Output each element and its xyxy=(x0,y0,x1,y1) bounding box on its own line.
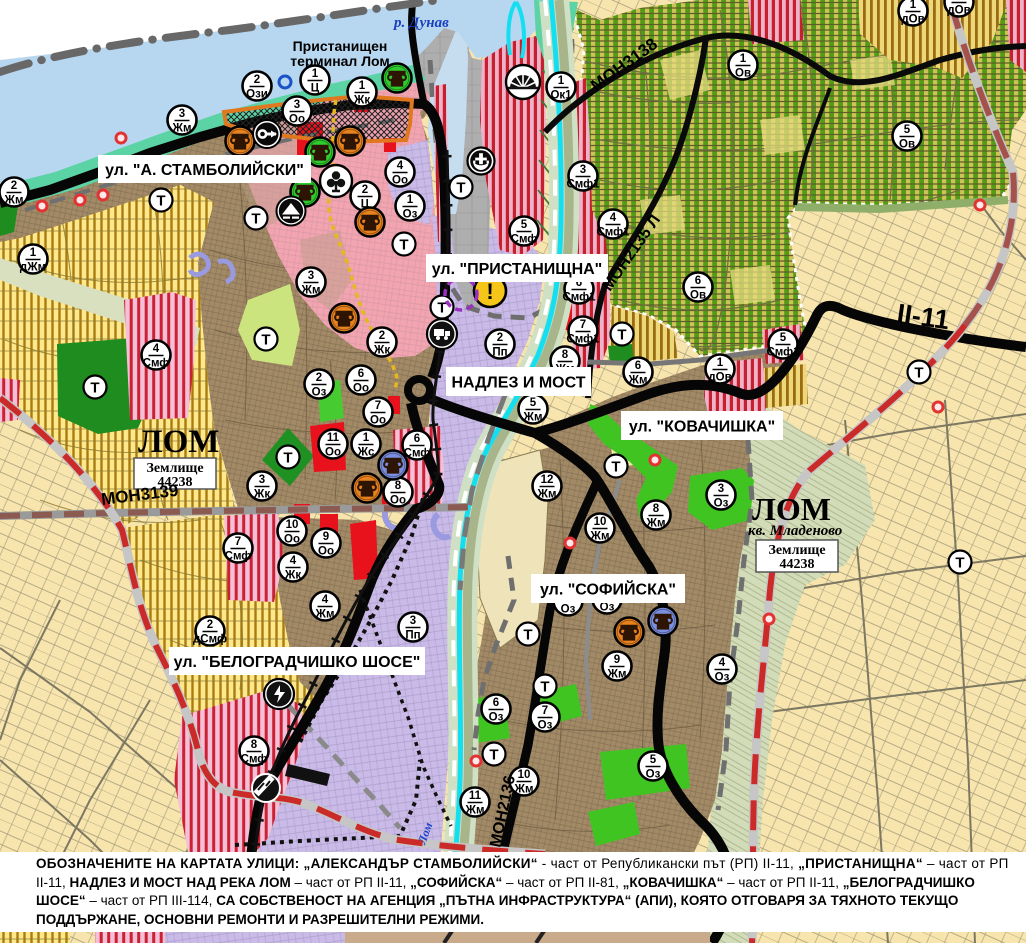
svg-text:10: 10 xyxy=(518,769,531,781)
svg-text:4: 4 xyxy=(322,594,329,606)
svg-text:Смф1: Смф1 xyxy=(566,334,600,346)
svg-text:10: 10 xyxy=(286,519,299,531)
svg-text:2: 2 xyxy=(207,619,213,631)
svg-text:7: 7 xyxy=(580,319,586,331)
svg-text:Смф1: Смф1 xyxy=(562,292,596,304)
svg-text:Землище: Землище xyxy=(768,543,825,558)
svg-text:ул. "СОФИЙСКА": ул. "СОФИЙСКА" xyxy=(540,579,676,598)
svg-text:Оо: Оо xyxy=(370,415,386,427)
svg-text:Ов: Ов xyxy=(899,139,915,151)
svg-text:3: 3 xyxy=(179,108,185,120)
svg-text:ул. "КОВАЧИШКА": ул. "КОВАЧИШКА" xyxy=(629,418,775,435)
svg-text:4: 4 xyxy=(153,343,160,355)
svg-text:Жм: Жм xyxy=(301,285,321,297)
svg-text:Т: Т xyxy=(540,679,549,696)
svg-text:Оо: Оо xyxy=(325,447,341,459)
svg-text:Оо: Оо xyxy=(318,546,334,558)
svg-text:Жм: Жм xyxy=(590,531,610,543)
svg-text:ул. "А. СТАМБОЛИЙСКИ": ул. "А. СТАМБОЛИЙСКИ" xyxy=(105,160,304,179)
svg-text:9: 9 xyxy=(614,654,620,666)
svg-text:12: 12 xyxy=(541,474,554,486)
svg-text:Жм: Жм xyxy=(172,123,192,135)
svg-text:2: 2 xyxy=(316,372,322,384)
svg-text:Жм: Жм xyxy=(607,669,627,681)
svg-text:дСмф: дСмф xyxy=(193,634,227,646)
svg-text:Пп: Пп xyxy=(405,630,420,642)
svg-text:Смф: Смф xyxy=(225,551,252,563)
svg-text:6: 6 xyxy=(358,368,364,380)
svg-text:Жс: Жс xyxy=(357,447,375,459)
svg-text:Пп: Пп xyxy=(492,347,507,359)
svg-text:дОв: дОв xyxy=(947,5,970,17)
svg-text:8: 8 xyxy=(395,480,402,492)
svg-text:Жм: Жм xyxy=(628,375,648,387)
svg-text:1: 1 xyxy=(30,247,37,259)
svg-text:Ов: Ов xyxy=(735,68,751,80)
svg-text:1: 1 xyxy=(910,0,917,11)
svg-text:4: 4 xyxy=(397,160,404,172)
svg-text:Оо: Оо xyxy=(390,495,406,507)
svg-text:3: 3 xyxy=(410,615,416,627)
svg-text:Смф: Смф xyxy=(404,448,431,460)
svg-text:5: 5 xyxy=(780,332,787,344)
svg-text:Жм: Жм xyxy=(4,195,24,207)
svg-text:ЛОМ: ЛОМ xyxy=(752,491,831,527)
svg-text:Оз: Оз xyxy=(403,209,418,221)
svg-text:НАДЛЕЗ И МОСТ: НАДЛЕЗ И МОСТ xyxy=(451,374,585,391)
svg-text:ул. "ПРИСТАНИЩНА": ул. "ПРИСТАНИЩНА" xyxy=(432,261,603,278)
svg-text:Т: Т xyxy=(251,211,260,228)
svg-text:Т: Т xyxy=(523,627,532,644)
svg-text:6: 6 xyxy=(695,275,701,287)
svg-text:3: 3 xyxy=(294,99,300,111)
svg-text:Т: Т xyxy=(955,555,964,572)
svg-text:Пристанищен: Пристанищен xyxy=(293,38,388,54)
svg-text:Т: Т xyxy=(156,193,165,210)
svg-text:Оз: Оз xyxy=(489,712,504,724)
svg-text:Оз: Оз xyxy=(646,769,661,781)
svg-text:2: 2 xyxy=(362,184,368,196)
svg-text:р. Дунав: р. Дунав xyxy=(392,15,449,31)
svg-text:6: 6 xyxy=(635,360,641,372)
svg-text:5: 5 xyxy=(521,219,528,231)
svg-text:!: ! xyxy=(486,279,493,304)
svg-text:Жм: Жм xyxy=(646,518,666,530)
svg-text:1: 1 xyxy=(363,432,370,444)
svg-text:кв. Младеново: кв. Младеново xyxy=(748,523,842,539)
svg-text:Оо: Оо xyxy=(289,114,305,126)
svg-text:Т: Т xyxy=(617,327,626,344)
svg-text:6: 6 xyxy=(414,433,420,445)
svg-text:7: 7 xyxy=(375,400,381,412)
svg-text:1: 1 xyxy=(359,80,366,92)
svg-text:Т: Т xyxy=(914,365,923,382)
svg-text:3: 3 xyxy=(308,270,314,282)
svg-text:10: 10 xyxy=(594,516,607,528)
svg-text:дОв: дОв xyxy=(708,372,731,384)
svg-text:дОв: дОв xyxy=(901,14,924,26)
svg-text:Смф: Смф xyxy=(241,754,268,766)
svg-text:Ов: Ов xyxy=(690,290,706,302)
svg-text:1: 1 xyxy=(956,0,963,2)
svg-text:44238: 44238 xyxy=(780,557,815,572)
svg-text:Ц: Ц xyxy=(311,83,320,95)
svg-text:1: 1 xyxy=(407,194,414,206)
svg-text:3: 3 xyxy=(718,483,724,495)
svg-text:8: 8 xyxy=(562,349,569,361)
svg-text:Ок1: Ок1 xyxy=(550,90,572,102)
svg-text:2: 2 xyxy=(254,74,260,86)
svg-text:Т: Т xyxy=(611,459,620,476)
svg-text:Оо: Оо xyxy=(392,175,408,187)
svg-text:Ози: Ози xyxy=(246,89,268,101)
svg-text:2: 2 xyxy=(11,180,17,192)
svg-text:ЛОМ: ЛОМ xyxy=(138,424,219,460)
svg-text:1: 1 xyxy=(312,68,319,80)
svg-text:Оз: Оз xyxy=(538,720,553,732)
svg-text:1: 1 xyxy=(740,53,747,65)
svg-text:Жм: Жм xyxy=(523,412,543,424)
svg-text:Смф: Смф xyxy=(143,358,170,370)
svg-text:5: 5 xyxy=(530,397,537,409)
svg-text:11: 11 xyxy=(469,790,482,802)
svg-text:4: 4 xyxy=(290,555,297,567)
svg-text:3: 3 xyxy=(259,474,265,486)
svg-text:Жк: Жк xyxy=(284,570,301,582)
svg-text:5: 5 xyxy=(904,124,911,136)
svg-text:4: 4 xyxy=(719,657,726,669)
svg-text:Оо: Оо xyxy=(353,383,369,395)
svg-text:2: 2 xyxy=(379,330,385,342)
svg-text:Оз: Оз xyxy=(715,672,730,684)
svg-text:Т: Т xyxy=(399,237,408,254)
svg-text:Т: Т xyxy=(456,180,465,197)
svg-text:Смф1: Смф1 xyxy=(766,347,800,359)
svg-text:Землище: Землище xyxy=(146,461,203,476)
svg-text:Жм: Жм xyxy=(315,609,335,621)
svg-text:2: 2 xyxy=(497,332,503,344)
svg-text:дЖм: дЖм xyxy=(20,262,46,274)
svg-text:Смф1: Смф1 xyxy=(596,227,630,239)
svg-text:Оз: Оз xyxy=(561,604,576,616)
svg-text:Т: Т xyxy=(261,332,270,349)
svg-text:8: 8 xyxy=(653,503,660,515)
svg-text:11: 11 xyxy=(327,432,340,444)
svg-text:7: 7 xyxy=(542,705,548,717)
svg-text:Оо: Оо xyxy=(284,534,300,546)
svg-text:Т: Т xyxy=(283,450,292,467)
svg-text:Жк: Жк xyxy=(253,489,270,501)
svg-text:Смф1: Смф1 xyxy=(566,179,600,191)
svg-text:Жк: Жк xyxy=(373,345,390,357)
svg-text:Оз: Оз xyxy=(312,387,327,399)
svg-text:Жм: Жм xyxy=(537,489,557,501)
svg-text:Смф: Смф xyxy=(511,234,538,246)
svg-text:Т: Т xyxy=(90,380,99,397)
svg-text:1: 1 xyxy=(717,357,724,369)
svg-text:6: 6 xyxy=(493,697,499,709)
svg-text:Жм: Жм xyxy=(465,805,485,817)
svg-text:ул. "БЕЛОГРАДЧИШКО ШОСЕ": ул. "БЕЛОГРАДЧИШКО ШОСЕ" xyxy=(174,654,421,671)
svg-text:7: 7 xyxy=(235,536,241,548)
svg-text:8: 8 xyxy=(251,739,258,751)
svg-text:4: 4 xyxy=(610,212,617,224)
svg-text:Оз: Оз xyxy=(600,602,615,614)
svg-text:Жк: Жк xyxy=(353,95,370,107)
svg-text:3: 3 xyxy=(580,164,586,176)
svg-text:9: 9 xyxy=(323,531,329,543)
svg-text:5: 5 xyxy=(650,754,657,766)
svg-text:Т: Т xyxy=(489,747,498,764)
svg-text:1: 1 xyxy=(558,75,565,87)
svg-text:терминал Лом: терминал Лом xyxy=(290,53,390,69)
svg-text:Оз: Оз xyxy=(714,498,729,510)
